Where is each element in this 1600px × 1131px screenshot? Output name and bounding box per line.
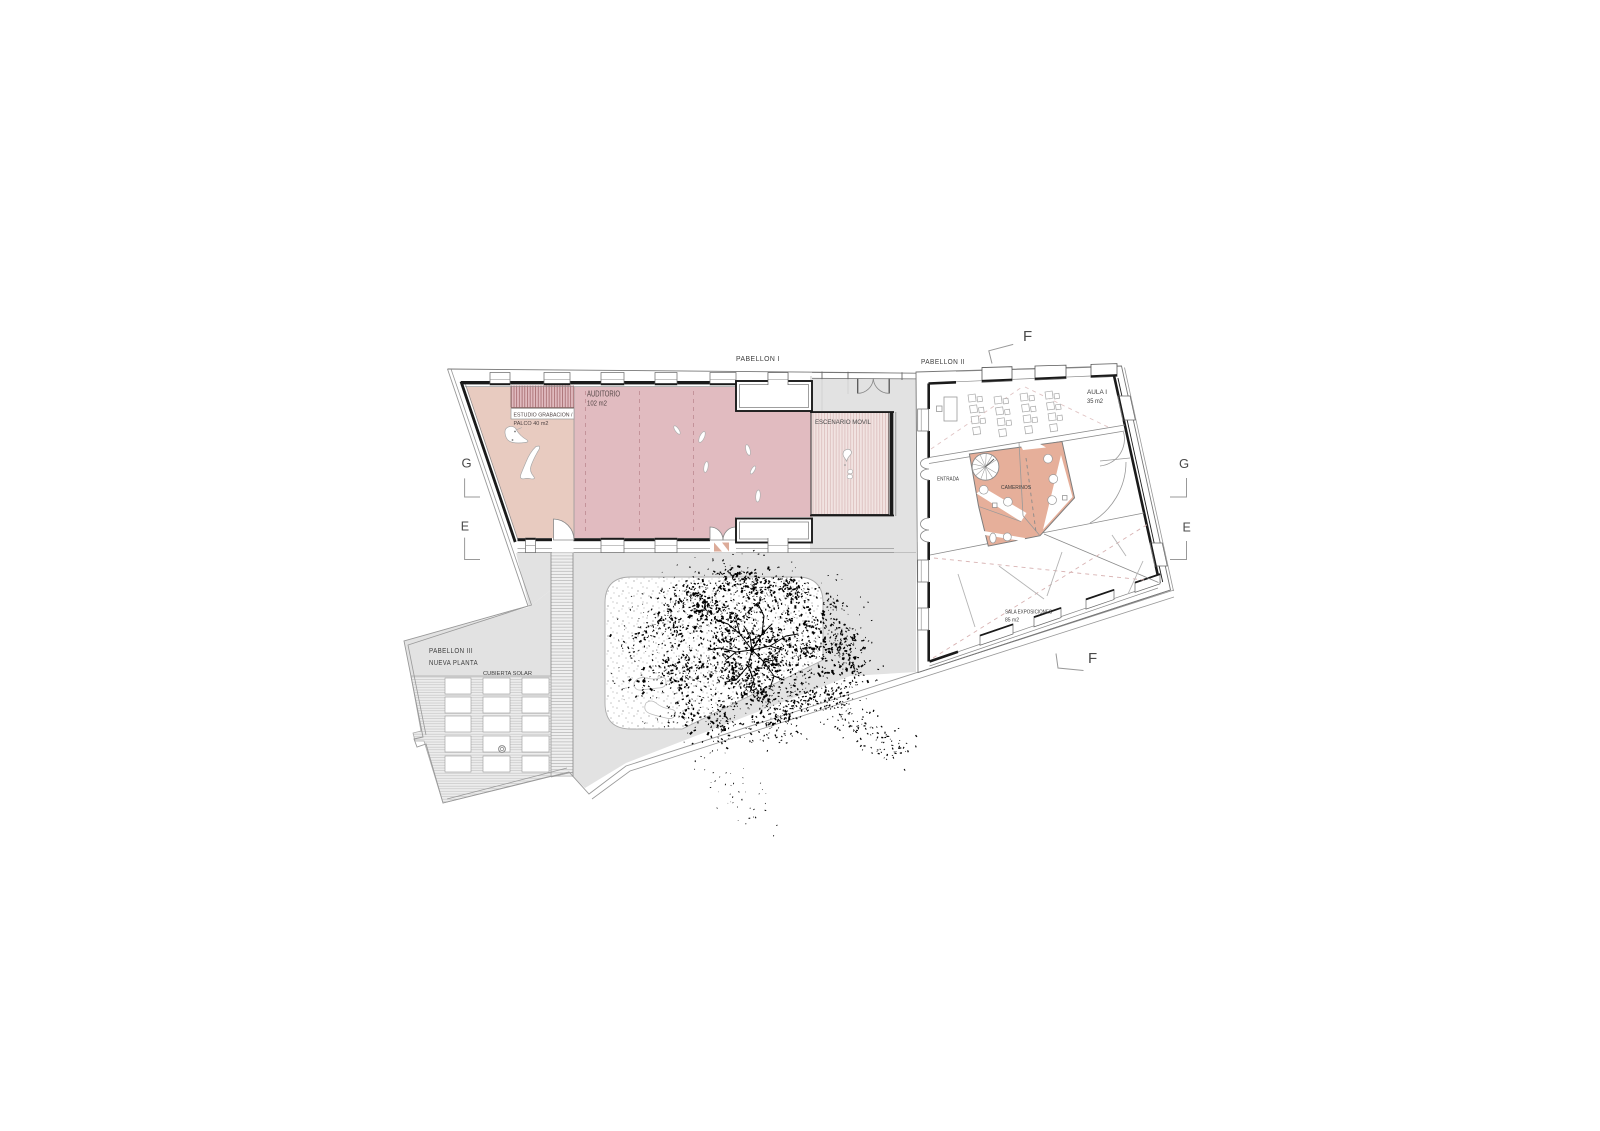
svg-text:PABELLON II: PABELLON II xyxy=(921,357,965,366)
svg-text:85 m2: 85 m2 xyxy=(1005,618,1019,624)
svg-text:PABELLON III: PABELLON III xyxy=(429,646,473,655)
svg-text:NUEVA PLANTA: NUEVA PLANTA xyxy=(429,658,478,667)
svg-text:PALCO 40 m2: PALCO 40 m2 xyxy=(514,421,549,427)
svg-text:CAMERINOS: CAMERINOS xyxy=(1001,485,1031,491)
svg-text:102 m2: 102 m2 xyxy=(587,399,607,408)
svg-text:PABELLON I: PABELLON I xyxy=(736,354,780,363)
svg-text:G: G xyxy=(1179,456,1189,471)
svg-text:F: F xyxy=(1088,650,1097,667)
svg-text:ESCENARIO MOVIL: ESCENARIO MOVIL xyxy=(815,419,871,426)
svg-text:E: E xyxy=(1183,521,1191,535)
svg-text:G: G xyxy=(462,456,472,471)
svg-text:ESTUDIO GRABACION /: ESTUDIO GRABACION / xyxy=(514,413,573,419)
svg-text:F: F xyxy=(1023,328,1032,345)
svg-text:ENTRADA: ENTRADA xyxy=(937,477,959,483)
svg-text:E: E xyxy=(461,520,469,534)
svg-text:CUBIERTA SOLAR: CUBIERTA SOLAR xyxy=(483,671,532,677)
svg-text:SALA EXPOSICIONES: SALA EXPOSICIONES xyxy=(1005,610,1052,616)
svg-text:AULA I: AULA I xyxy=(1087,389,1107,396)
svg-text:AUDITORIO: AUDITORIO xyxy=(587,390,620,399)
svg-text:35 m2: 35 m2 xyxy=(1087,398,1104,405)
